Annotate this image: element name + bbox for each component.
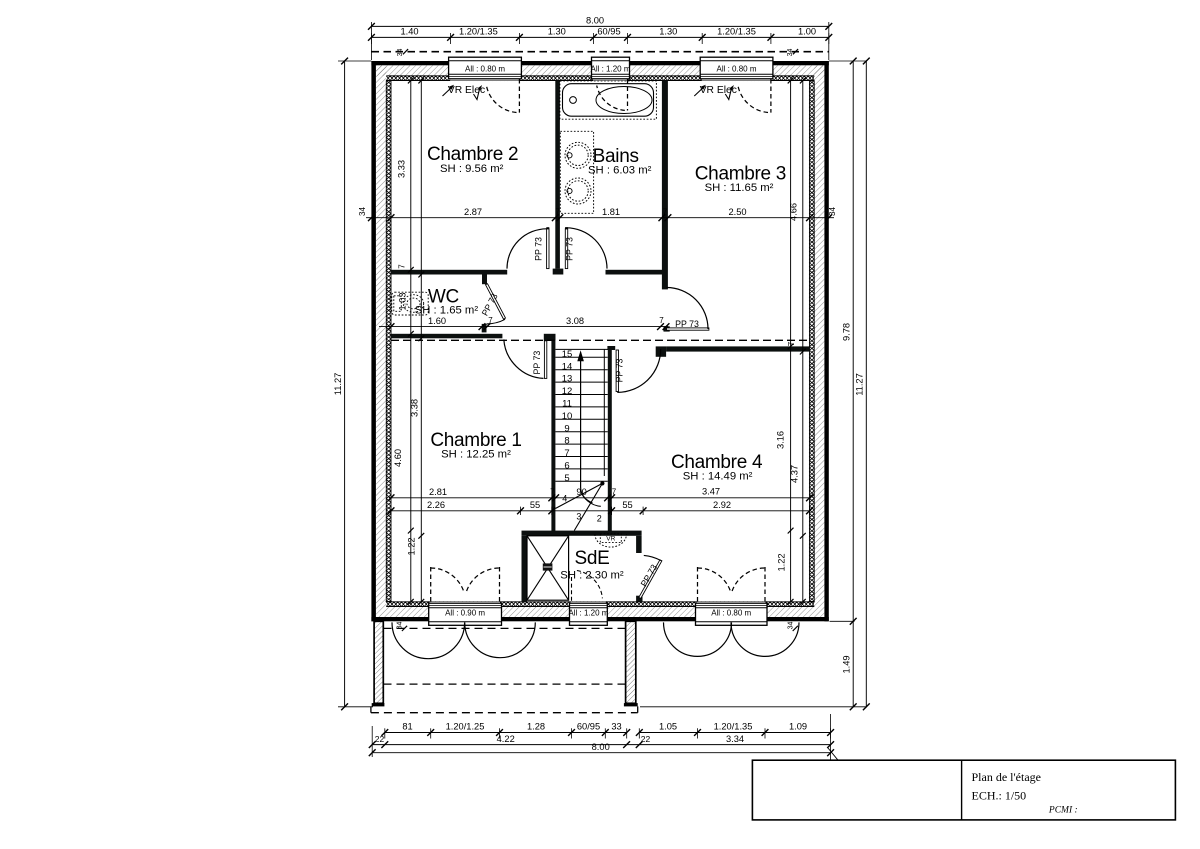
svg-text:SH : 2.30 m²: SH : 2.30 m² [560,569,624,581]
svg-text:81: 81 [402,722,412,732]
svg-text:4.60: 4.60 [393,449,403,467]
svg-text:60/95: 60/95 [577,722,600,732]
svg-text:7: 7 [488,316,493,325]
svg-text:SH : 12.25 m²: SH : 12.25 m² [441,449,511,461]
svg-text:7: 7 [550,488,555,497]
svg-text:90: 90 [576,487,586,497]
svg-text:All : 1.20 m: All : 1.20 m [590,64,630,73]
svg-text:2.50: 2.50 [728,207,746,217]
svg-text:8: 8 [564,436,569,447]
svg-text:7: 7 [787,341,796,346]
svg-text:1.00: 1.00 [798,27,816,37]
svg-text:1.22: 1.22 [777,553,787,571]
svg-text:55: 55 [622,500,632,510]
svg-text:3.47: 3.47 [702,487,720,497]
svg-text:7: 7 [659,316,664,325]
svg-text:1.49: 1.49 [841,655,851,673]
svg-text:VR: VR [606,535,615,542]
svg-text:PP 73: PP 73 [565,237,575,261]
svg-text:55: 55 [530,500,540,510]
svg-text:SdE: SdE [574,548,609,569]
svg-text:7: 7 [555,208,560,217]
svg-text:7: 7 [564,448,569,459]
svg-text:SH : 14.49 m²: SH : 14.49 m² [683,471,753,483]
svg-text:11: 11 [562,399,572,410]
svg-text:60/95: 60/95 [597,27,620,37]
svg-text:22: 22 [641,734,651,744]
svg-text:34: 34 [358,207,367,216]
svg-text:SH : 9.56 m²: SH : 9.56 m² [440,163,504,175]
svg-text:PP 73: PP 73 [615,358,625,382]
svg-text:34: 34 [397,49,404,57]
svg-text:PP 73: PP 73 [534,237,544,261]
svg-text:SH : 6.03 m²: SH : 6.03 m² [588,165,652,177]
svg-text:PCMI :: PCMI : [1048,806,1078,816]
svg-text:PP 73: PP 73 [532,351,542,375]
svg-text:34: 34 [397,622,404,630]
svg-text:1.81: 1.81 [602,207,620,217]
svg-text:1.20/1.25: 1.20/1.25 [446,722,485,732]
svg-text:SH : 1.65 m²: SH : 1.65 m² [415,305,479,317]
svg-text:22: 22 [375,734,385,744]
svg-text:33: 33 [611,722,621,732]
svg-text:8.00: 8.00 [586,16,604,26]
svg-text:3.33: 3.33 [397,160,407,178]
svg-text:11.27: 11.27 [855,373,865,396]
svg-text:4: 4 [562,494,567,504]
svg-text:10: 10 [562,411,573,422]
svg-text:All : 0.80 m: All : 0.80 m [716,64,756,73]
svg-text:3.38: 3.38 [410,399,420,417]
svg-text:3.34: 3.34 [726,734,744,744]
svg-text:3.08: 3.08 [566,316,584,326]
svg-text:1.09: 1.09 [789,722,807,732]
svg-text:12: 12 [562,386,573,397]
svg-text:14: 14 [562,361,573,372]
svg-text:1.60: 1.60 [428,316,446,326]
svg-text:34: 34 [828,207,837,216]
svg-text:2.26: 2.26 [427,500,445,510]
svg-text:All : 0.80 m: All : 0.80 m [465,64,505,73]
svg-text:Plan de l'étage: Plan de l'étage [972,770,1041,784]
svg-text:1.20/1.35: 1.20/1.35 [717,27,756,37]
svg-text:2.87: 2.87 [464,207,482,217]
svg-text:3: 3 [576,512,581,522]
svg-text:1.28: 1.28 [527,722,545,732]
svg-text:15: 15 [562,349,573,360]
svg-text:4.22: 4.22 [497,734,515,744]
svg-text:SH : 11.65 m²: SH : 11.65 m² [705,182,774,194]
svg-text:4.66: 4.66 [789,203,799,221]
svg-text:9: 9 [564,423,569,434]
svg-text:All : 0.80 m: All : 0.80 m [711,609,751,618]
svg-text:4.37: 4.37 [790,465,800,483]
svg-text:3.16: 3.16 [776,431,786,449]
svg-text:13: 13 [562,374,573,385]
svg-text:2.92: 2.92 [713,500,731,510]
svg-text:1.22: 1.22 [406,537,416,555]
svg-text:ECH.: 1/50: ECH.: 1/50 [972,789,1027,803]
svg-text:PP 73: PP 73 [675,319,699,329]
svg-text:1.05: 1.05 [659,722,677,732]
svg-text:1.30: 1.30 [548,27,566,37]
svg-text:34: 34 [787,49,794,57]
svg-text:9.78: 9.78 [841,323,851,341]
svg-text:All : 1.20 m: All : 1.20 m [568,609,608,618]
svg-text:1.20/1.35: 1.20/1.35 [714,722,753,732]
svg-text:1.30: 1.30 [659,27,677,37]
svg-text:6: 6 [564,461,569,472]
svg-text:7: 7 [612,488,617,497]
svg-text:2: 2 [597,514,602,524]
svg-text:7: 7 [663,208,668,217]
svg-text:34: 34 [787,622,794,630]
svg-text:1.03: 1.03 [397,292,407,310]
svg-text:11.27: 11.27 [333,373,343,396]
svg-text:5: 5 [564,473,569,484]
svg-text:7: 7 [397,264,406,269]
svg-text:1.40: 1.40 [400,27,418,37]
svg-text:8.00: 8.00 [592,742,610,752]
svg-text:1.20/1.35: 1.20/1.35 [459,27,498,37]
svg-text:2.81: 2.81 [429,487,447,497]
svg-text:All : 0.90 m: All : 0.90 m [445,609,485,618]
